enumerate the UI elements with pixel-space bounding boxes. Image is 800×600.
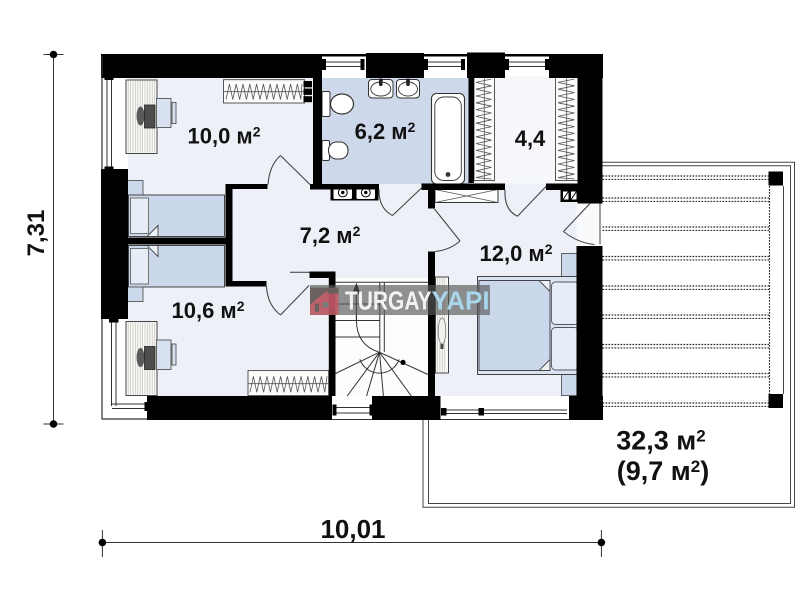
svg-text:4,4: 4,4 [515, 126, 546, 151]
svg-text:10,0 м2: 10,0 м2 [187, 124, 260, 149]
svg-text:6,2 м2: 6,2 м2 [355, 119, 416, 144]
svg-text:7,31: 7,31 [23, 210, 50, 257]
svg-text:TURGAY: TURGAY [345, 286, 432, 316]
svg-text:12,0 м2: 12,0 м2 [479, 241, 552, 266]
svg-text:YAPI: YAPI [432, 286, 490, 316]
svg-text:10,6 м2: 10,6 м2 [171, 298, 244, 323]
svg-text:7,2 м2: 7,2 м2 [300, 223, 361, 248]
svg-text:32,3 м2: 32,3 м2 [616, 426, 706, 456]
svg-text:10,01: 10,01 [320, 514, 385, 544]
